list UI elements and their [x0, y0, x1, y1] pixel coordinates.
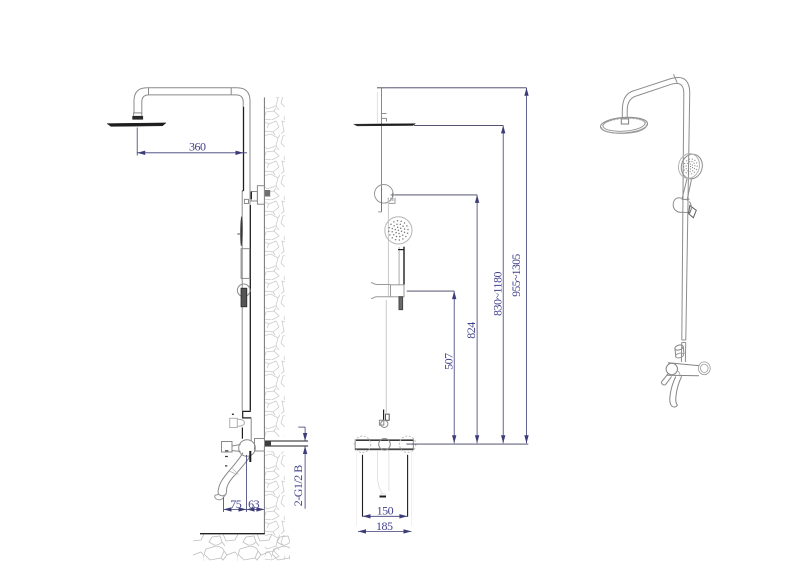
svg-text:75: 75 [230, 497, 242, 511]
svg-text:824: 824 [464, 322, 478, 339]
svg-text:63: 63 [248, 497, 260, 511]
svg-text:360: 360 [189, 139, 206, 153]
svg-text:150: 150 [377, 503, 394, 517]
svg-text:507: 507 [441, 353, 455, 370]
svg-text:2-G1/2 B: 2-G1/2 B [291, 465, 305, 506]
svg-text:955~1305: 955~1305 [511, 254, 523, 297]
svg-text:830~1180: 830~1180 [490, 271, 504, 316]
svg-text:185: 185 [376, 519, 393, 533]
